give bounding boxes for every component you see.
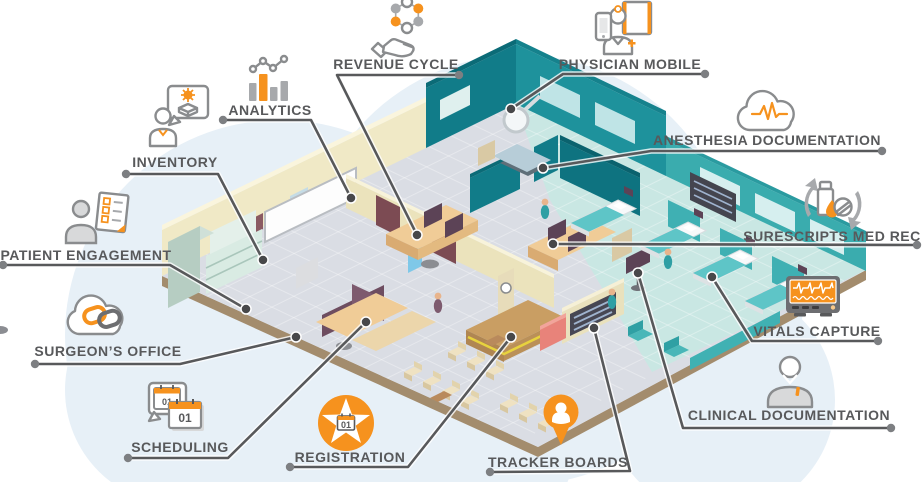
analytics-target-dot (346, 193, 356, 203)
physician-mobile-end-dot (701, 70, 709, 78)
physician-mobile-label: PHYSICIAN MOBILE (559, 56, 702, 72)
registration-end-dot (286, 463, 294, 471)
revenue-cycle-end-dot (455, 71, 463, 79)
surescripts-med-rec-label: SURESCRIPTS MED REC (743, 228, 921, 244)
revenue-cycle-target-dot (412, 230, 422, 240)
vitals-capture-target-dot (707, 272, 717, 282)
inventory-end-dot (122, 170, 130, 178)
surgeons-office-label: SURGEON’S OFFICE (34, 343, 181, 359)
diagram-canvas: 010101 INVENTORYANALYTICSREVENUE CYCLEPH… (0, 0, 923, 482)
scheduling-end-dot (124, 454, 132, 462)
scheduling-label: SCHEDULING (131, 439, 229, 455)
revenue-cycle-icon (372, 0, 423, 57)
infographic-stage: 010101 INVENTORYANALYTICSREVENUE CYCLEPH… (0, 0, 923, 482)
surescripts-med-rec-leader-line (553, 244, 917, 245)
patient-engagement-label: PATIENT ENGAGEMENT (0, 247, 171, 263)
anesthesia-documentation-target-dot (538, 163, 548, 173)
registration-target-dot (506, 332, 516, 342)
registration-calendar-day: 01 (341, 420, 351, 430)
physician-mobile-icon (596, 2, 651, 54)
clinical-documentation-label: CLINICAL DOCUMENTATION (688, 407, 890, 423)
surgeons-office-end-dot (31, 360, 39, 368)
tracker-boards-target-dot (589, 323, 599, 333)
anesthesia-documentation-label: ANESTHESIA DOCUMENTATION (653, 132, 881, 148)
analytics-end-dot (219, 116, 227, 124)
analytics-label: ANALYTICS (228, 102, 311, 118)
clinical-documentation-target-dot (633, 268, 643, 278)
patient-engagement-target-dot (241, 304, 251, 314)
inventory-label: INVENTORY (132, 154, 218, 170)
vitals-monitor-icon (786, 276, 840, 317)
anesthesia-documentation-end-dot (878, 147, 886, 155)
anesthesia-cloud-icon (738, 91, 794, 130)
registration-label: REGISTRATION (295, 449, 406, 465)
inventory-target-dot (258, 255, 268, 265)
analytics-icon (249, 56, 288, 101)
vitals-capture-label: VITALS CAPTURE (753, 323, 880, 339)
revenue-cycle-label: REVENUE CYCLE (333, 56, 459, 72)
scheduling-front-day: 01 (178, 411, 192, 425)
surescripts-med-rec-target-dot (548, 239, 558, 249)
clinical-documentation-end-dot (887, 424, 895, 432)
registration-star-icon: 01 (318, 395, 374, 451)
surgeons-office-target-dot (291, 332, 301, 342)
tracker-boards-label: TRACKER BOARDS (488, 454, 628, 470)
physician-mobile-target-dot (506, 104, 516, 114)
scheduling-target-dot (361, 317, 371, 327)
